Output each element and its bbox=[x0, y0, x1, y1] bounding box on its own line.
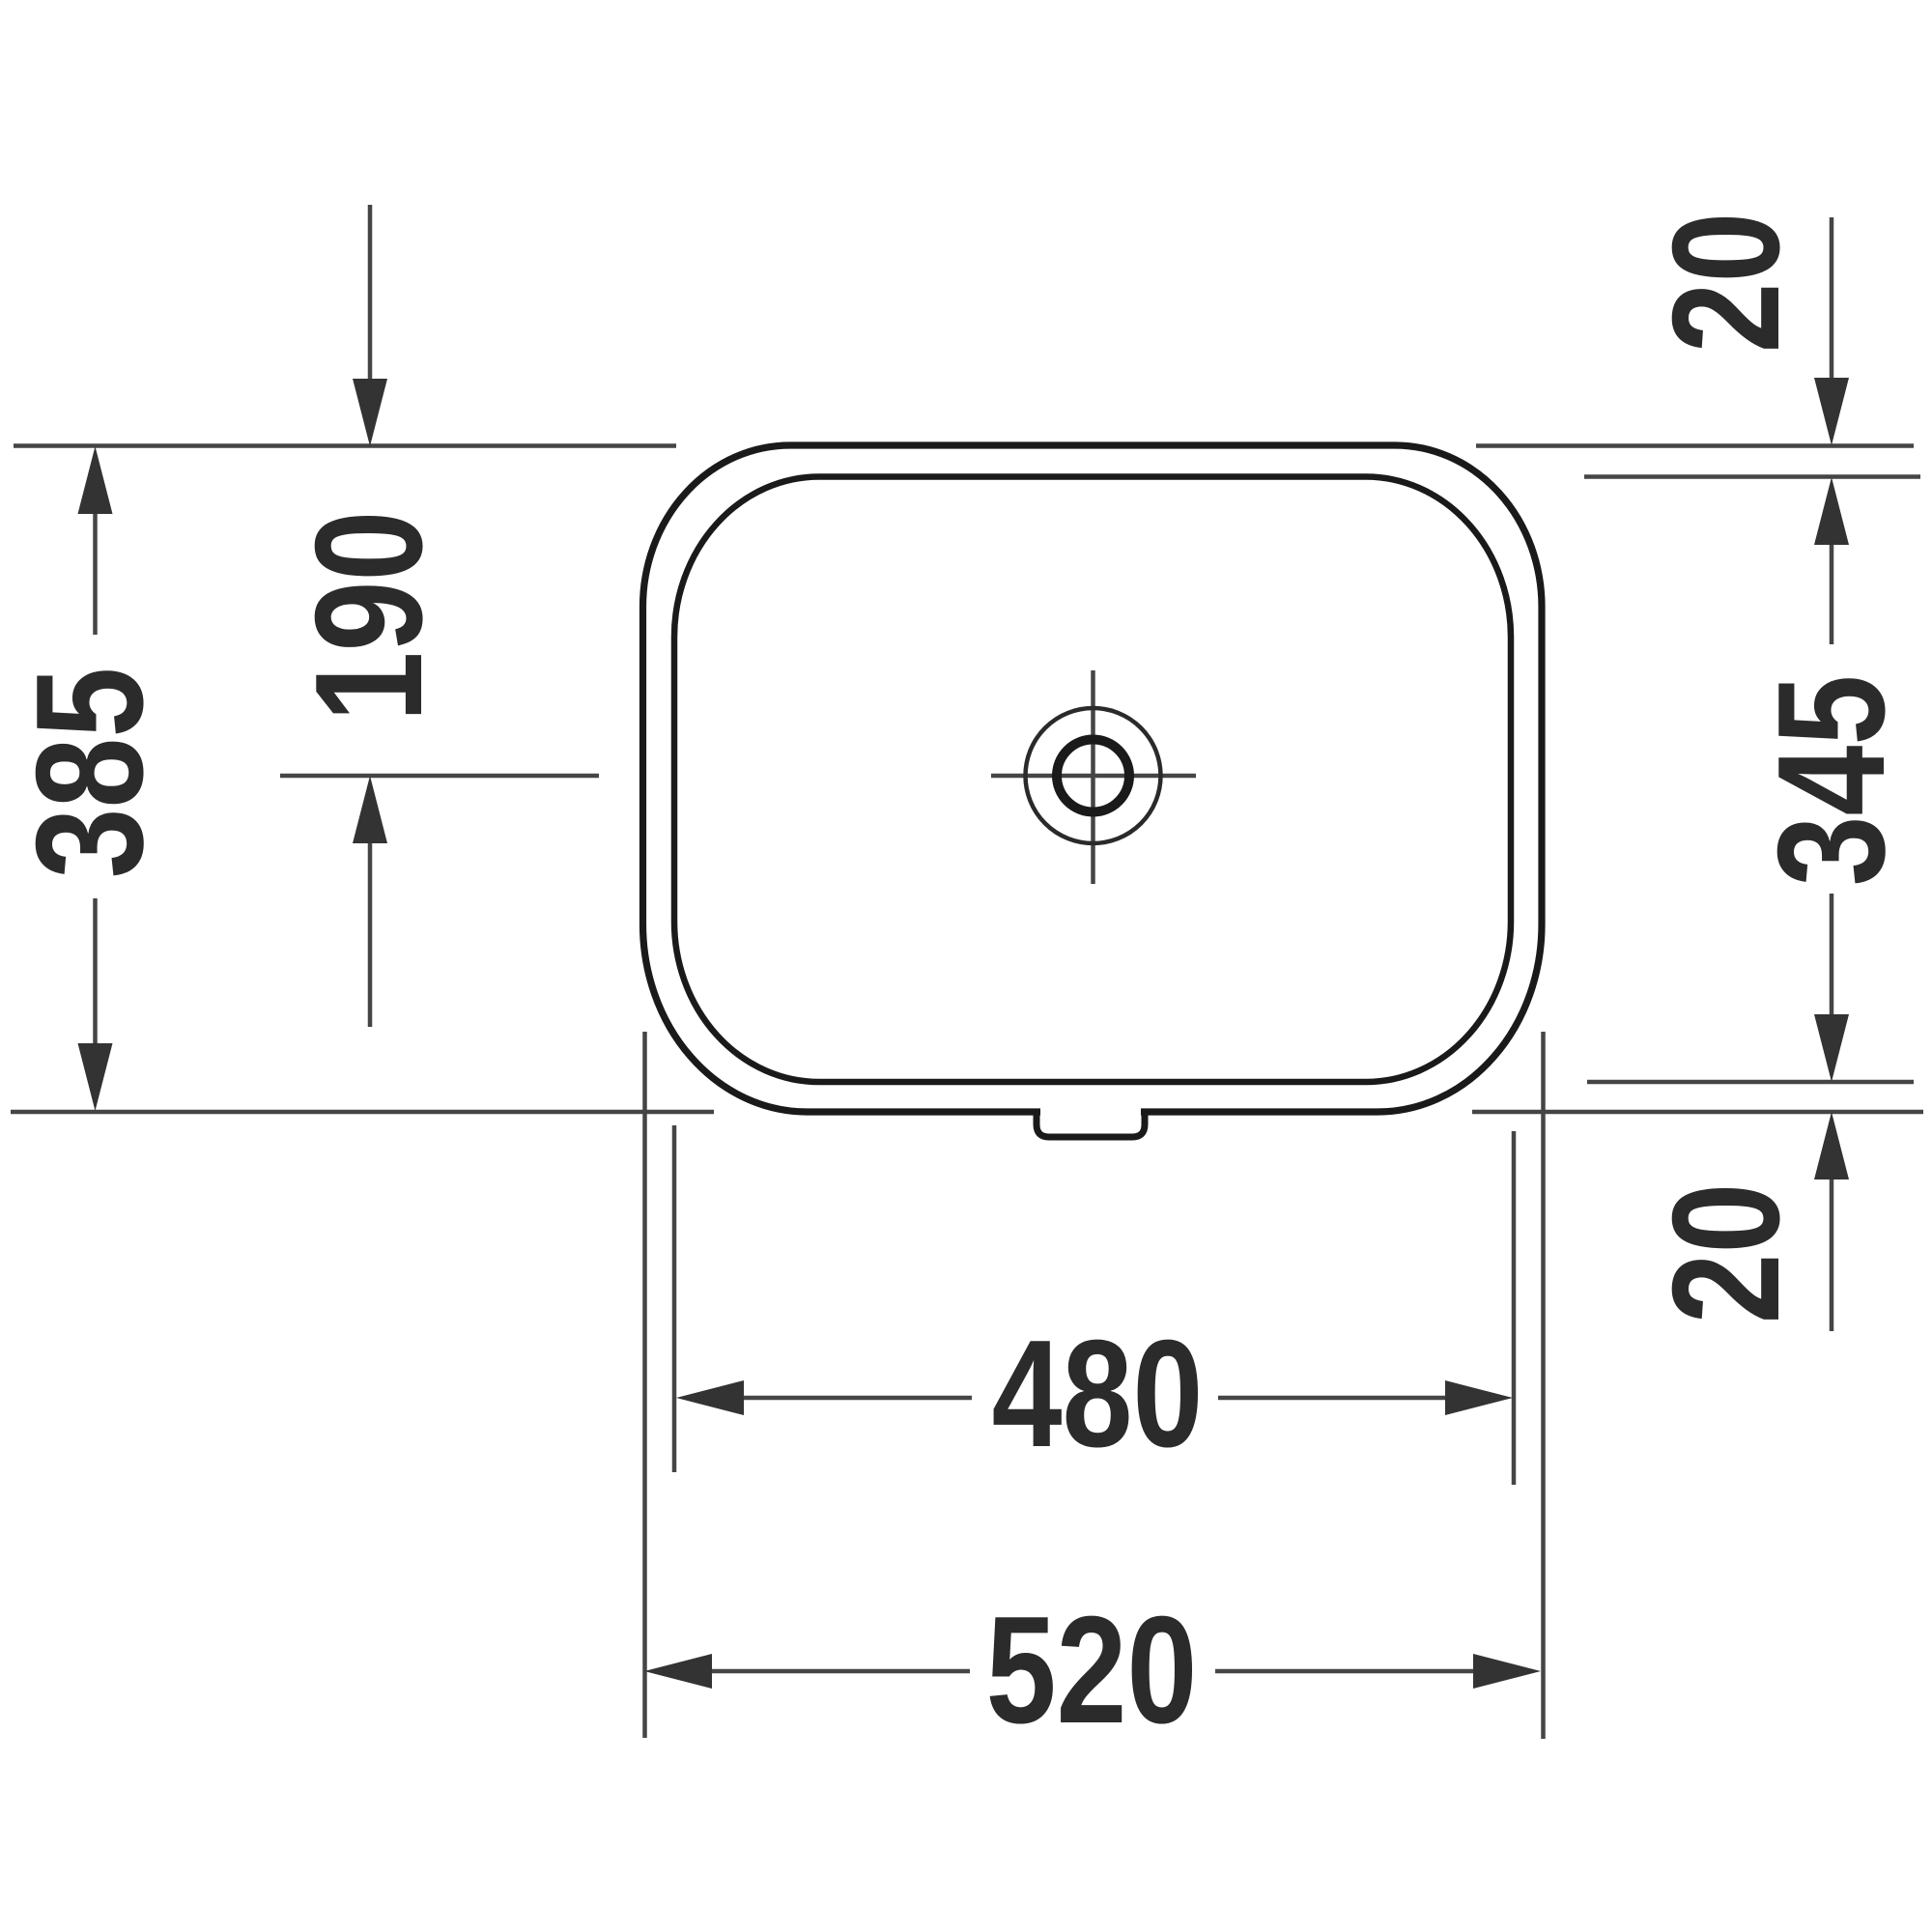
svg-text:190: 190 bbox=[283, 511, 453, 723]
svg-text:520: 520 bbox=[986, 1584, 1198, 1754]
svg-text:385: 385 bbox=[4, 668, 174, 879]
svg-text:345: 345 bbox=[1746, 675, 1916, 887]
svg-text:20: 20 bbox=[1640, 1183, 1810, 1324]
svg-text:480: 480 bbox=[992, 1308, 1204, 1478]
svg-text:20: 20 bbox=[1640, 213, 1810, 354]
